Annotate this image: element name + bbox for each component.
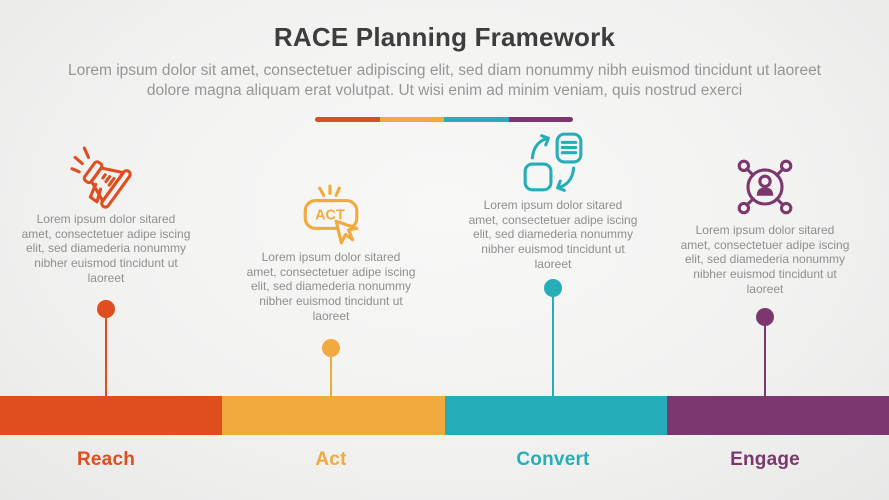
stage-label-convert: Convert	[443, 449, 663, 471]
stage-label-act: Act	[221, 449, 441, 471]
stage-description: Lorem ipsum dolor sitared amet, consecte…	[680, 223, 850, 296]
color-divider	[315, 117, 573, 122]
page-title: RACE Planning Framework	[0, 22, 889, 53]
divider-segment-engage	[509, 117, 574, 122]
divider-segment-convert	[444, 117, 509, 122]
stage-label-engage: Engage	[655, 449, 875, 471]
stage-label-reach: Reach	[0, 449, 216, 471]
bar-segment-engage	[667, 396, 889, 435]
race-infographic: RACE Planning Framework Lorem ipsum dolo…	[0, 0, 889, 500]
act-icon-text: ACT	[315, 208, 345, 224]
bar-segment-act	[222, 396, 444, 435]
timeline-stem	[105, 309, 107, 396]
timeline-stem	[552, 288, 554, 396]
timeline-stem	[764, 317, 766, 396]
subtitle-text: Lorem ipsum dolor sit amet, consectetuer…	[64, 61, 826, 101]
stage-description: Lorem ipsum dolor sitared amet, consecte…	[468, 198, 638, 271]
exchange-documents-icon	[520, 130, 586, 196]
divider-segment-act	[380, 117, 445, 122]
stage-bar	[0, 396, 889, 435]
stage-description: Lorem ipsum dolor sitared amet, consecte…	[246, 250, 416, 323]
divider-segment-reach	[315, 117, 380, 122]
megaphone-icon	[73, 146, 139, 212]
bar-segment-convert	[445, 396, 667, 435]
person-network-icon	[732, 155, 798, 221]
timeline-stem	[330, 348, 332, 396]
stage-description: Lorem ipsum dolor sitared amet, consecte…	[21, 212, 191, 285]
act-button-cursor-icon: ACT	[298, 183, 364, 249]
bar-segment-reach	[0, 396, 222, 435]
